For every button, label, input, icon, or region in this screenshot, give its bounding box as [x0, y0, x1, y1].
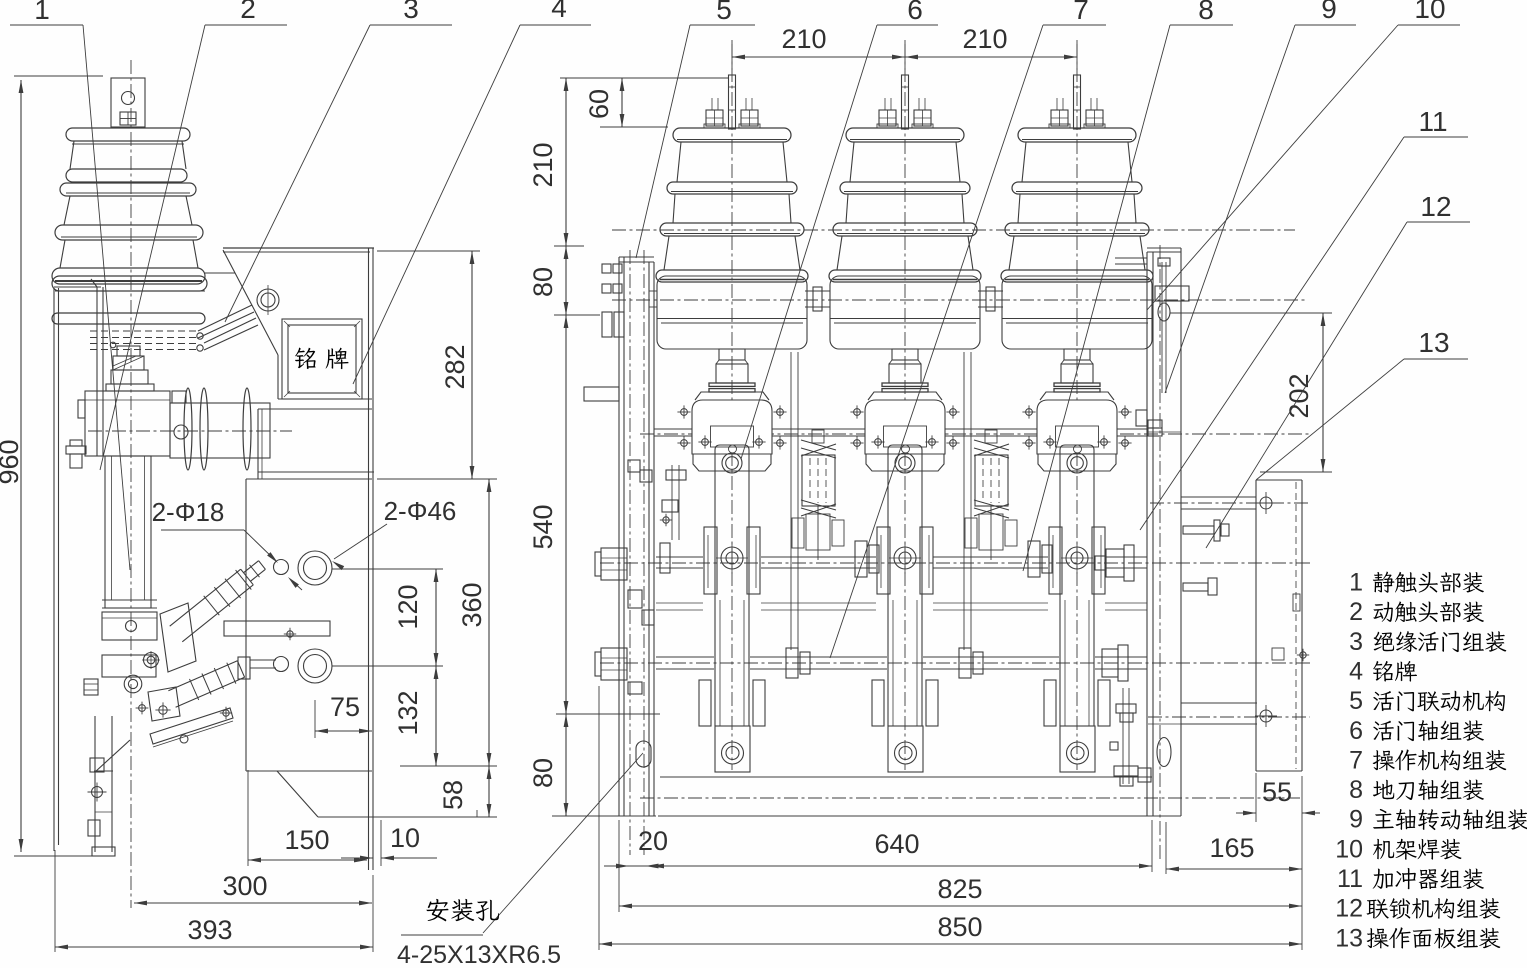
svg-text:9: 9 [1321, 0, 1337, 24]
svg-text:13: 13 [1418, 327, 1449, 358]
svg-text:210: 210 [962, 24, 1007, 54]
svg-text:60: 60 [584, 89, 614, 119]
svg-text:3: 3 [403, 0, 419, 24]
svg-text:540: 540 [528, 504, 558, 549]
svg-text:3: 3 [1349, 628, 1363, 656]
svg-text:80: 80 [528, 267, 558, 297]
svg-text:6: 6 [907, 0, 923, 25]
svg-text:360: 360 [457, 582, 487, 627]
svg-text:10: 10 [1414, 0, 1445, 24]
svg-text:640: 640 [874, 829, 919, 859]
svg-text:5: 5 [716, 0, 732, 25]
svg-text:4-25X13XR6.5: 4-25X13XR6.5 [397, 941, 561, 968]
svg-text:7: 7 [1349, 746, 1363, 774]
svg-text:4: 4 [1349, 658, 1363, 686]
svg-text:20: 20 [638, 826, 668, 856]
svg-text:2: 2 [240, 0, 256, 24]
svg-text:6: 6 [1349, 717, 1363, 745]
svg-text:210: 210 [528, 142, 558, 187]
svg-text:13: 13 [1335, 924, 1363, 952]
svg-text:2: 2 [1349, 598, 1363, 626]
svg-text:960: 960 [0, 439, 24, 484]
svg-text:10: 10 [390, 823, 420, 853]
svg-text:11: 11 [1418, 106, 1447, 137]
svg-text:282: 282 [440, 344, 470, 389]
svg-text:210: 210 [781, 24, 826, 54]
svg-text:8: 8 [1198, 0, 1214, 25]
svg-text:7: 7 [1073, 0, 1089, 25]
svg-text:300: 300 [222, 871, 267, 901]
svg-text:393: 393 [187, 915, 232, 945]
svg-text:55: 55 [1262, 777, 1292, 807]
svg-text:5: 5 [1349, 687, 1363, 715]
svg-text:80: 80 [528, 758, 558, 788]
svg-text:132: 132 [393, 690, 423, 735]
svg-text:9: 9 [1349, 806, 1363, 834]
svg-text:12: 12 [1420, 191, 1451, 222]
svg-text:11: 11 [1337, 865, 1363, 893]
svg-text:8: 8 [1349, 776, 1363, 804]
svg-text:1: 1 [1349, 569, 1363, 597]
svg-text:825: 825 [937, 874, 982, 904]
svg-text:12: 12 [1335, 895, 1363, 923]
svg-text:150: 150 [284, 825, 329, 855]
svg-text:4: 4 [551, 0, 567, 23]
svg-text:1: 1 [34, 0, 50, 25]
svg-text:2-Φ46: 2-Φ46 [384, 496, 457, 526]
svg-text:165: 165 [1209, 833, 1254, 863]
svg-text:850: 850 [937, 912, 982, 942]
svg-text:2-Φ18: 2-Φ18 [152, 497, 225, 527]
svg-text:58: 58 [438, 780, 468, 810]
svg-text:120: 120 [393, 584, 423, 629]
svg-text:75: 75 [330, 692, 360, 722]
svg-text:10: 10 [1335, 835, 1363, 863]
